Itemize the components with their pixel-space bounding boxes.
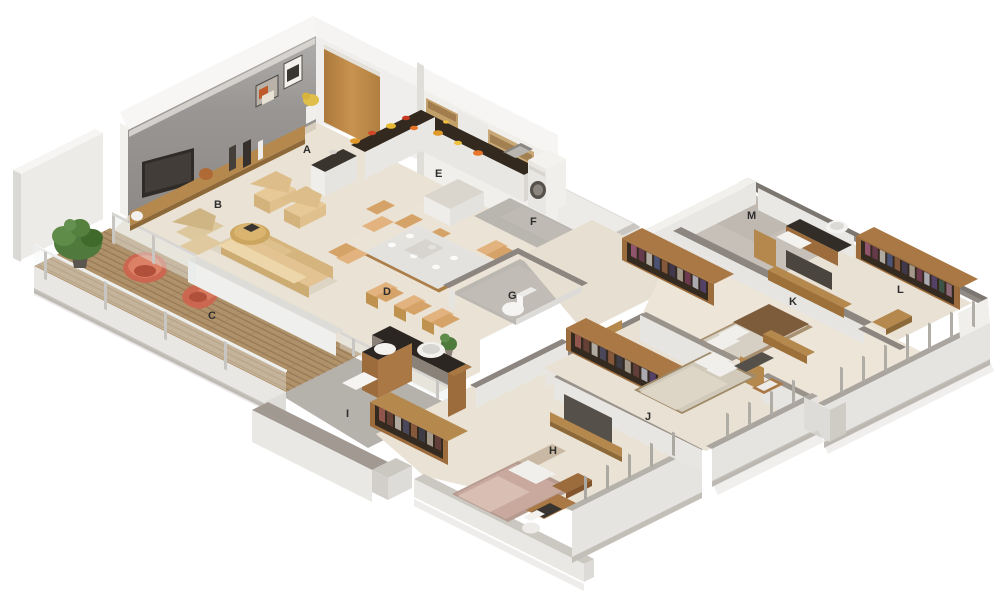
svg-text:C: C	[208, 310, 216, 322]
svg-text:D: D	[383, 286, 391, 298]
svg-text:J: J	[645, 411, 651, 423]
svg-text:F: F	[530, 216, 537, 228]
svg-text:B: B	[214, 199, 222, 211]
svg-text:H: H	[549, 445, 557, 457]
svg-text:G: G	[508, 290, 517, 302]
svg-text:M: M	[747, 210, 756, 222]
svg-text:L: L	[897, 284, 904, 296]
svg-text:E: E	[435, 168, 442, 180]
svg-text:A: A	[303, 144, 311, 156]
svg-text:I: I	[346, 408, 349, 420]
svg-text:K: K	[789, 296, 797, 308]
